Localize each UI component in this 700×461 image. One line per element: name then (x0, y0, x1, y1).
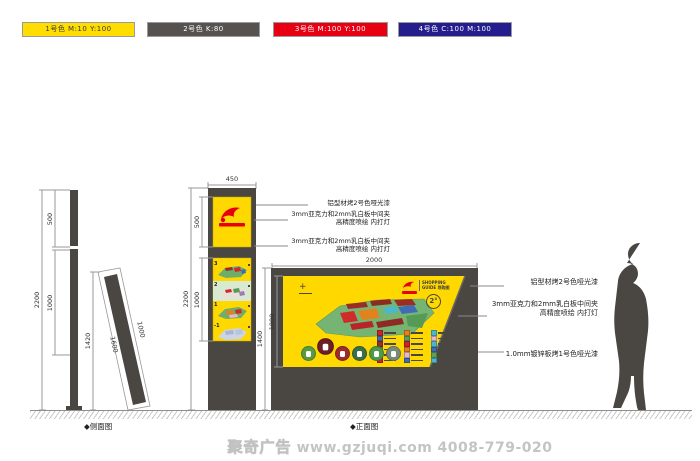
annotation: 铝型材烤2号色哑光漆 (250, 199, 390, 207)
floor-row-b1: -1 (213, 322, 251, 342)
annotation: 高精度喷绘 内打灯 (468, 309, 598, 318)
brand-swoosh-icon (218, 203, 246, 229)
amenity-icon (301, 346, 316, 361)
annotation: 1.0mm镀锌板烤1号色哑光漆 (468, 350, 598, 359)
footer: 聚奇广告 www.gzjuqi.com 4008-779-020 (180, 436, 600, 457)
brand-swoosh-icon (402, 280, 417, 290)
side-view-tilted-panel: 1420 1600 1000 (84, 268, 150, 410)
footer-phone: 4008-779-020 (437, 440, 552, 456)
annotation: 铝型材烤2号色哑光漆 (468, 278, 598, 287)
annotation: 高精度喷绘 内打灯 (250, 245, 390, 253)
amenity-icon (369, 346, 384, 361)
human-silhouette (613, 243, 648, 410)
annotation: 高精度喷绘 内打灯 (250, 218, 390, 226)
dim-sign-panel-height: 1000 (268, 314, 276, 331)
dim-sign-width: 2000 (366, 256, 383, 264)
side-view-label: ◆侧面图 (84, 421, 112, 432)
amenity-icon (352, 346, 367, 361)
dim-side-upper: 500 (46, 213, 54, 225)
annotation: 3mm亚克力和2mm乳白板中间夹 (468, 300, 598, 309)
brand-name-bar (402, 291, 417, 294)
dim-totem-map-panel: 1000 (193, 292, 201, 309)
compass-plus-glyph: + (299, 282, 307, 292)
amenity-icon (317, 338, 334, 355)
logo-divider (419, 280, 420, 291)
totem-annotations: 铝型材烤2号色哑光漆 3mm亚克力和2mm乳白板中间夹 高精度喷绘 内打灯 3m… (250, 199, 390, 253)
totem-brand-logo (218, 203, 246, 233)
ground-hatch (30, 410, 692, 419)
floor-row-3: 3 (213, 260, 251, 280)
dim-totem-total: 2200 (182, 291, 190, 308)
annotation: 3mm亚克力和2mm乳白板中间夹 (250, 237, 390, 245)
dim-tilt-height: 1420 (84, 333, 92, 350)
sign-brand-logo (402, 280, 417, 294)
dim-totem-width: 450 (226, 175, 238, 183)
dim-sign-total-height: 1400 (256, 331, 264, 348)
amenity-icons (301, 346, 401, 361)
amenity-icon (386, 346, 401, 361)
legend-item (404, 358, 430, 364)
design-sheet: 1号色 M:10 Y:100 2号色 K:80 3号色 M:100 Y:100 … (0, 0, 700, 461)
sign-title-line2: GUIDE 导购图 (422, 285, 449, 290)
degree-badge: 2° (426, 294, 441, 309)
front-view-label: ◆正面图 (350, 421, 378, 432)
amenity-icon (335, 346, 350, 361)
compass-bar (299, 293, 312, 294)
dim-totem-logo-panel: 500 (193, 216, 201, 228)
sign-brand-block: SHOPPING GUIDE 导购图 (402, 280, 449, 294)
floor-row-2: 2 (213, 281, 251, 301)
compass-plus-icon: + (299, 283, 312, 294)
sign-annotations: 铝型材烤2号色哑光漆 3mm亚克力和2mm乳白板中间夹 高精度喷绘 内打灯 1.… (468, 278, 598, 359)
dim-tilt-panel: 1000 (135, 321, 146, 339)
legend-item (431, 358, 457, 364)
dim-side-panel: 1000 (46, 295, 54, 312)
floor-row-1: 1 (213, 301, 251, 321)
dim-side-total: 2200 (33, 292, 41, 309)
annotation: 3mm亚克力和2mm乳白板中间夹 (250, 210, 390, 218)
footer-url: www.gzjuqi.com (297, 440, 433, 456)
footer-brand: 聚奇广告 (227, 438, 291, 456)
side-view-pole: 2200 500 1000 (33, 190, 82, 410)
